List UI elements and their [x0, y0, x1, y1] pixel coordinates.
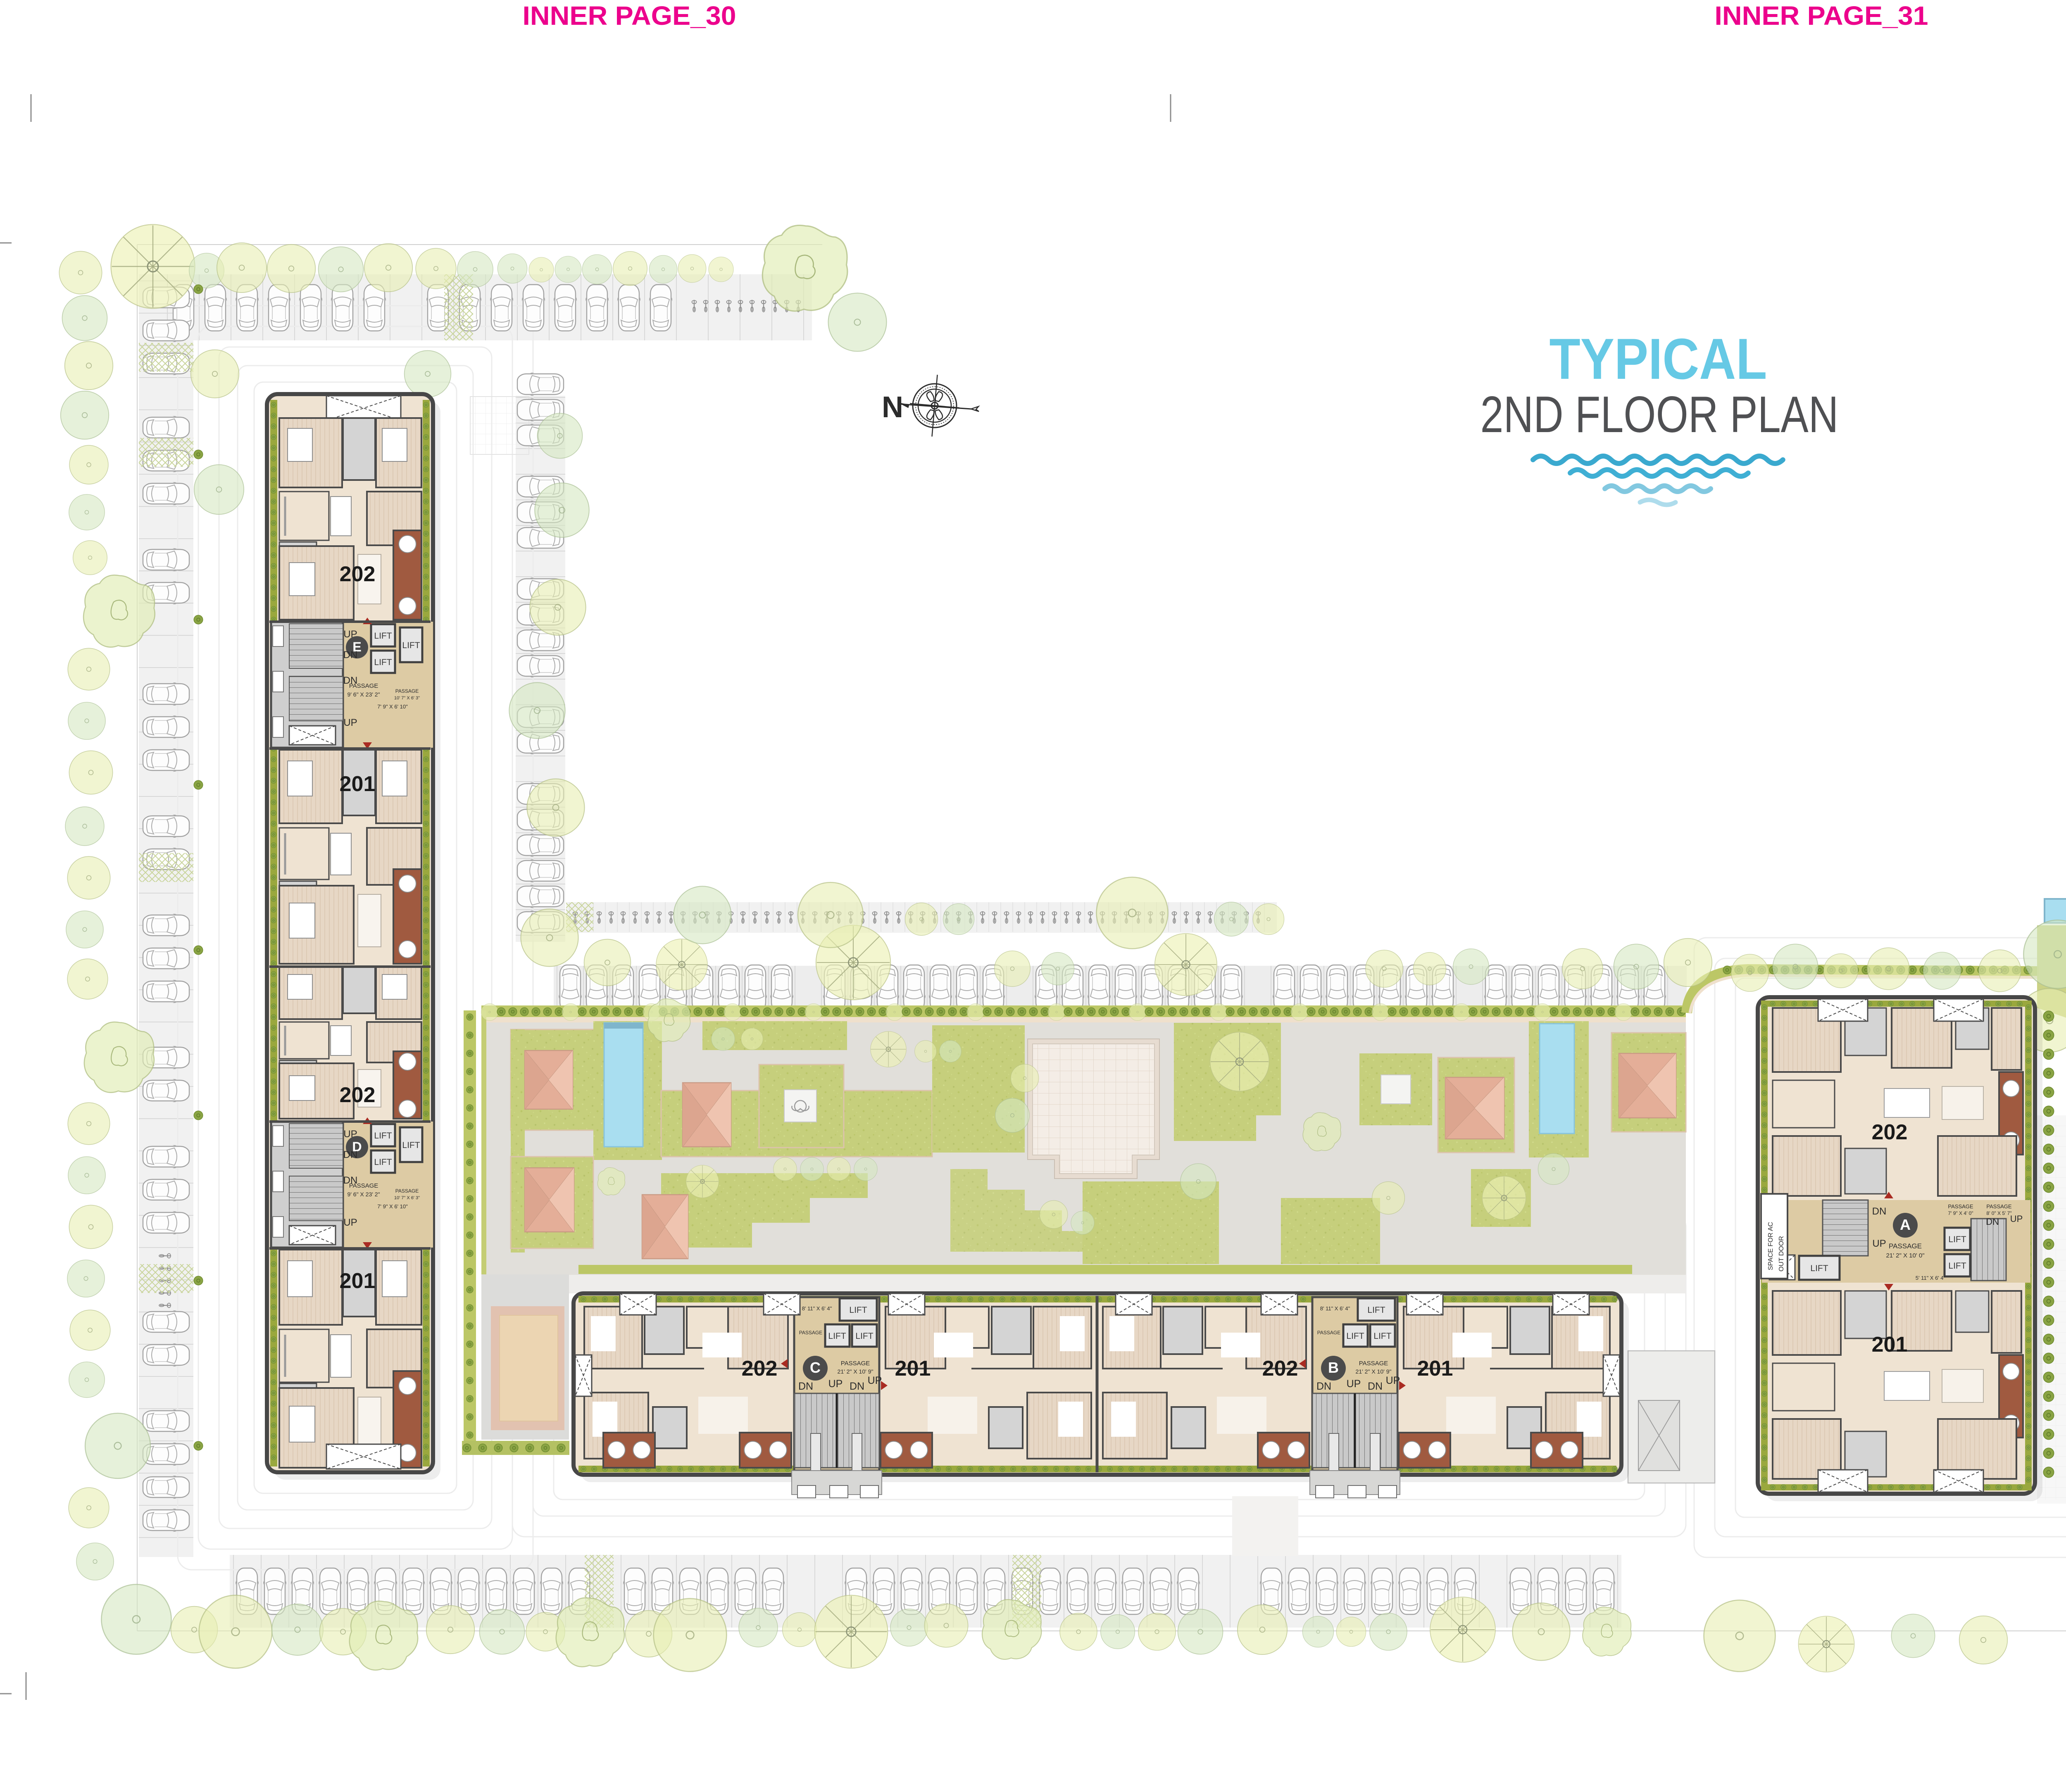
svg-text:PASSAGE: PASSAGE — [395, 1188, 419, 1194]
svg-text:7' 9" X 4' 0": 7' 9" X 4' 0" — [1948, 1210, 1973, 1216]
svg-text:UP: UP — [343, 1217, 357, 1228]
svg-text:LIFT: LIFT — [402, 1141, 420, 1150]
svg-text:PASSAGE: PASSAGE — [1889, 1242, 1922, 1250]
svg-text:7' 9" X 6' 10": 7' 9" X 6' 10" — [377, 703, 408, 710]
svg-text:DN: DN — [343, 649, 358, 661]
svg-text:202: 202 — [742, 1357, 778, 1381]
svg-text:PASSAGE: PASSAGE — [799, 1330, 822, 1336]
svg-text:10' 7" X 6' 3": 10' 7" X 6' 3" — [394, 1195, 420, 1200]
svg-text:LIFT: LIFT — [855, 1331, 873, 1341]
svg-text:5' 11" X 6' 4": 5' 11" X 6' 4" — [1916, 1275, 1946, 1281]
svg-text:INNER PAGE_30: INNER PAGE_30 — [523, 1, 736, 31]
svg-text:PASSAGE: PASSAGE — [1317, 1330, 1340, 1336]
svg-text:B: B — [1328, 1359, 1339, 1376]
svg-text:LIFT: LIFT — [374, 631, 392, 641]
svg-text:PASSAGE: PASSAGE — [841, 1360, 870, 1367]
svg-text:8' 11" X 6' 4": 8' 11" X 6' 4" — [802, 1305, 832, 1312]
svg-text:LIFT: LIFT — [402, 641, 420, 650]
svg-text:LIFT: LIFT — [1346, 1331, 1364, 1341]
svg-text:201: 201 — [1872, 1333, 1908, 1357]
svg-text:UP: UP — [828, 1378, 843, 1390]
svg-text:201: 201 — [895, 1357, 931, 1381]
svg-text:10' 7" X 6' 3": 10' 7" X 6' 3" — [394, 696, 420, 701]
svg-text:INNER PAGE_31: INNER PAGE_31 — [1715, 1, 1928, 31]
svg-text:LIFT: LIFT — [1373, 1331, 1391, 1341]
svg-text:UP: UP — [343, 629, 357, 640]
svg-text:201: 201 — [340, 772, 376, 796]
svg-text:SPACE FOR AC: SPACE FOR AC — [1767, 1222, 1774, 1270]
svg-text:DN: DN — [1986, 1217, 1999, 1227]
svg-text:9' 6" X 23' 2": 9' 6" X 23' 2" — [347, 1191, 380, 1198]
svg-text:LIFT: LIFT — [828, 1331, 846, 1341]
svg-text:C: C — [810, 1359, 821, 1376]
svg-text:PASSAGE: PASSAGE — [1948, 1203, 1973, 1210]
svg-text:PASSAGE: PASSAGE — [395, 688, 419, 694]
svg-text:9' 6" X 23' 2": 9' 6" X 23' 2" — [347, 691, 380, 698]
svg-text:UP: UP — [343, 717, 357, 728]
svg-text:LIFT: LIFT — [1948, 1261, 1966, 1271]
svg-text:DN: DN — [850, 1381, 864, 1392]
svg-text:PASSAGE: PASSAGE — [349, 682, 378, 689]
svg-text:DN: DN — [343, 1149, 358, 1160]
svg-text:LIFT: LIFT — [1810, 1264, 1828, 1273]
svg-text:PASSAGE: PASSAGE — [349, 1182, 378, 1189]
svg-text:LIFT: LIFT — [1367, 1305, 1385, 1315]
svg-text:OUT DOOR: OUT DOOR — [1778, 1236, 1785, 1272]
svg-text:UP: UP — [1872, 1238, 1886, 1249]
svg-text:PASSAGE: PASSAGE — [1359, 1360, 1388, 1367]
svg-text:PASSAGE: PASSAGE — [1986, 1203, 2012, 1210]
svg-text:UP: UP — [1386, 1375, 1400, 1386]
svg-text:DN: DN — [1368, 1381, 1383, 1392]
svg-text:TYPICAL: TYPICAL — [1549, 326, 1767, 391]
svg-text:202: 202 — [1872, 1120, 1908, 1144]
svg-text:UP: UP — [2010, 1214, 2023, 1224]
svg-text:LIFT: LIFT — [374, 1157, 392, 1167]
svg-text:21' 2" X 10' 9": 21' 2" X 10' 9" — [838, 1368, 874, 1375]
svg-text:UP: UP — [1347, 1378, 1361, 1390]
svg-text:UP: UP — [868, 1375, 882, 1386]
svg-text:21' 2" X 10' 0": 21' 2" X 10' 0" — [1886, 1252, 1924, 1259]
svg-text:7' 9" X 6' 10": 7' 9" X 6' 10" — [377, 1203, 408, 1210]
svg-text:201: 201 — [1417, 1357, 1453, 1381]
svg-text:DN: DN — [1316, 1381, 1331, 1392]
svg-text:202: 202 — [340, 1083, 376, 1107]
svg-text:LIFT: LIFT — [374, 1131, 392, 1141]
svg-text:A: A — [1900, 1216, 1911, 1233]
svg-text:201: 201 — [340, 1269, 376, 1293]
svg-text:2ND FLOOR PLAN: 2ND FLOOR PLAN — [1480, 386, 1839, 443]
svg-text:LIFT: LIFT — [849, 1305, 867, 1315]
svg-text:DN: DN — [798, 1381, 813, 1392]
svg-text:LIFT: LIFT — [374, 658, 392, 667]
svg-text:8' 11" X 6' 4": 8' 11" X 6' 4" — [1320, 1305, 1350, 1312]
svg-text:DN: DN — [1872, 1206, 1887, 1217]
svg-text:UP: UP — [343, 1129, 357, 1140]
svg-text:8' 0" X 5' 7": 8' 0" X 5' 7" — [1986, 1210, 2011, 1216]
svg-text:LIFT: LIFT — [1948, 1235, 1966, 1244]
svg-text:202: 202 — [340, 562, 376, 586]
svg-text:N: N — [882, 391, 903, 424]
svg-text:202: 202 — [1262, 1357, 1298, 1381]
svg-text:21' 2" X 10' 9": 21' 2" X 10' 9" — [1356, 1368, 1392, 1375]
